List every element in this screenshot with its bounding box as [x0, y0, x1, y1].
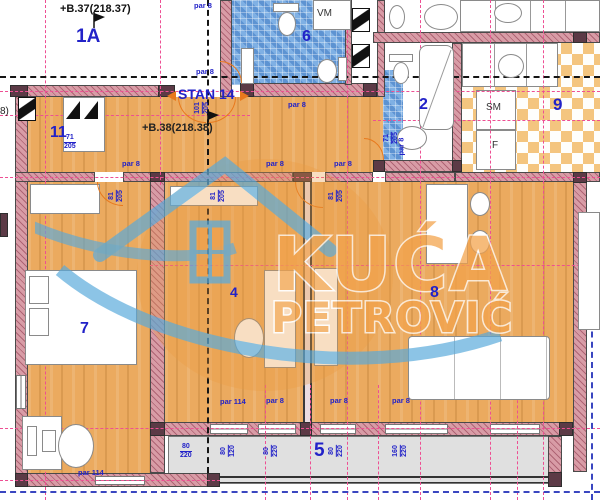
window-left-wall [16, 375, 26, 409]
room-label-7: 7 [80, 320, 89, 338]
parapet-label: par 8 [392, 396, 410, 405]
neighbor-washbasin [424, 4, 458, 30]
wall-stub-left-edge [0, 213, 8, 237]
wall-block [452, 160, 462, 172]
parapet-label: par 8 [330, 396, 348, 405]
dim-door-8: 81205 [328, 190, 344, 202]
kitchen-sink [494, 3, 522, 23]
dim-window-1: 80220 [180, 443, 192, 459]
shaft-triangle [66, 101, 80, 119]
elevation-label-left-partial: 8) [0, 106, 9, 117]
wall-bath2-bottom [373, 160, 462, 172]
toilet-tank [389, 54, 413, 62]
toilet-tank [338, 57, 347, 81]
dim-door-4: 81205 [210, 190, 226, 202]
pillow [29, 276, 49, 304]
dim-window-4: 80220 [328, 445, 344, 457]
axis-line-pink [378, 385, 379, 500]
axis-line-pink [0, 428, 600, 429]
chair-room7 [58, 424, 94, 468]
room-label-6: 6 [302, 28, 311, 46]
toilet-bowl [278, 12, 296, 36]
axis-line-pink [543, 0, 544, 500]
wall-vm-right [377, 0, 385, 97]
window-bottom-1 [210, 424, 248, 434]
axis-line-pink [517, 385, 518, 500]
dim-bath-door: 71205 [383, 132, 399, 144]
dishwasher-label: SM [486, 102, 501, 113]
elevation-label-top: +B.37(218.37) [60, 3, 131, 15]
unit-label-1a: 1A [76, 26, 100, 48]
axis-line-pink [310, 385, 311, 500]
wall-top-mid [240, 83, 377, 97]
shaft-triangle [84, 101, 98, 119]
dim-window-3: 80220 [263, 445, 279, 457]
floor-plan: KUĆA PETROVIĆ +B.37(218.37) +B.38(218.38… [0, 0, 600, 500]
desk-pc [42, 430, 56, 452]
dim-door-7: 81205 [108, 190, 124, 202]
parapet-label: par 8 [196, 67, 214, 76]
shaft-symbol [352, 44, 370, 68]
dining-table [426, 184, 468, 264]
room-label-4: 4 [230, 284, 238, 300]
shower-tray [241, 48, 254, 84]
neighbor-toilet [389, 5, 405, 29]
wardrobe-room7 [30, 184, 100, 214]
desk-room4 [264, 270, 296, 368]
shaft-symbol [352, 8, 370, 32]
axis-line-blue [0, 491, 600, 493]
wall-block [573, 32, 587, 43]
wall-block [240, 83, 254, 97]
wall-top-right [373, 32, 600, 43]
wall-block [548, 472, 562, 487]
parapet-label-114: par 114 [78, 468, 104, 477]
axis-line-pink [0, 177, 600, 178]
kitchen-counter-top [460, 0, 600, 32]
window-bottom-2 [258, 424, 296, 434]
shelf-room8-wall [314, 268, 338, 366]
washing-machine-label: VM [317, 8, 332, 19]
elevation-label-mid: +B.38(218.38) [142, 122, 213, 134]
terrace-edge-line [168, 476, 560, 483]
axis-line-pink [0, 91, 600, 92]
room-label-2: 2 [419, 96, 428, 114]
wall-block [559, 422, 573, 436]
window-bottom-3 [320, 424, 356, 434]
dim-window-5: 160220 [392, 445, 408, 457]
parapet-label: par 8 [266, 159, 284, 168]
room-label-8: 8 [430, 284, 439, 302]
toilet-tank [273, 3, 299, 12]
axis-line-pink [373, 120, 600, 121]
kitchen-sink [498, 54, 524, 78]
parapet-label: par 8 [194, 1, 212, 10]
room-label-9: 9 [553, 95, 562, 115]
wall-block [363, 83, 377, 97]
axis-line-pink [0, 480, 220, 481]
axis-line-pink [490, 0, 491, 500]
axis-line-pink [160, 0, 161, 185]
dining-chair [470, 192, 490, 216]
chair-room4 [234, 318, 264, 358]
axis-line-pink [150, 265, 600, 266]
room-label-5: 5 [314, 440, 325, 462]
parapet-label: par 8 [288, 100, 306, 109]
parapet-label-114: par 114 [220, 397, 246, 406]
parapet-label: par 8 [334, 159, 352, 168]
toilet-bowl [393, 62, 409, 84]
pillow [29, 308, 49, 336]
bathtub [419, 45, 454, 130]
axis-line-pink [347, 0, 348, 500]
desk-monitor [27, 426, 37, 456]
dim-entry-door: 101205 [194, 102, 210, 114]
window-bottom-5 [490, 424, 540, 434]
wall-block [150, 422, 165, 436]
wall-block [373, 160, 385, 172]
parapet-label: par 8 [266, 396, 284, 405]
dim-hall-door: 71205 [64, 134, 76, 150]
toilet-bowl [317, 59, 337, 83]
window-bottom-4 [385, 424, 448, 434]
shaft-symbol [18, 97, 36, 121]
neighbor-cabinet [578, 212, 600, 330]
apartment-label: STAN 14 [178, 86, 235, 102]
dining-chair [470, 230, 490, 254]
sofa [408, 336, 550, 400]
parapet-label: par 8 [122, 159, 140, 168]
dim-window-2: 80120 [220, 445, 236, 457]
fridge-label: F [492, 140, 498, 151]
